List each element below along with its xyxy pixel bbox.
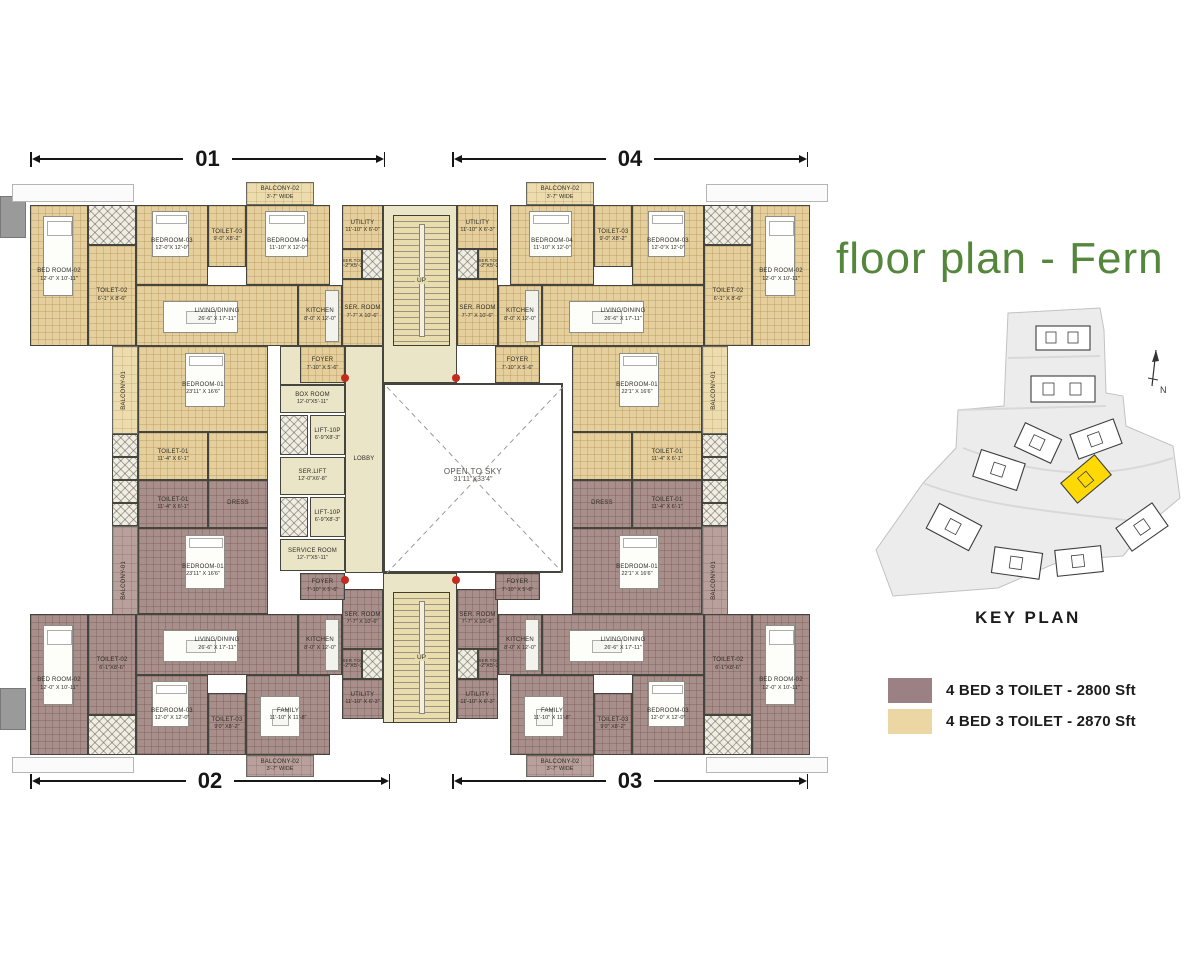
u01-wardrobe — [208, 432, 268, 480]
room-label: KITCHEN8'-0" X 12'-0" — [504, 637, 536, 651]
room-label: UTILITY11'-10" X 6'-3" — [345, 692, 379, 706]
u03-kitchen: KITCHEN8'-0" X 12'-0" — [498, 614, 542, 675]
dim-line — [232, 158, 376, 160]
u03-dress: DRESS — [572, 480, 632, 528]
u04-toilet-01: TOILET-0111'-4" X 6'-1" — [632, 432, 702, 480]
u03-toilet-01: TOILET-0111'-4" X 6'-1" — [632, 480, 702, 528]
wall-stub-left-bottom — [0, 688, 26, 730]
room-label: BEDROOM-0123'11" X 16'6" — [182, 564, 224, 578]
key-plan: N KEY PLAN — [868, 298, 1188, 633]
stairs-up-label: UP — [415, 654, 428, 661]
lift-2: LIFT-10P6'-9"X8'-3" — [310, 497, 345, 537]
room-label: SER. ROOM7'-7" X 10'-6" — [459, 305, 495, 319]
dim-line — [462, 780, 606, 782]
north-label: N — [1160, 385, 1167, 395]
dim-arrow — [799, 777, 807, 785]
room-label: FOYER7'-10" X 5'-6" — [307, 357, 339, 371]
room-label: UTILITY11'-10" X 6'-0" — [345, 220, 379, 234]
legend-row: 4 BED 3 TOILET - 2870 Sft — [888, 709, 1136, 734]
dimension-unit-01: 01 — [30, 150, 385, 168]
room-label: BALCONY-01 — [121, 561, 129, 600]
dim-line — [654, 158, 798, 160]
room-label: BALCONY-01 — [711, 371, 719, 410]
bedw-furniture — [619, 535, 659, 589]
dim-line — [40, 780, 186, 782]
u03-shaft-a — [702, 480, 728, 503]
u01-ser-room: SER. ROOM7'-7" X 10'-6" — [342, 279, 383, 346]
staircase-top: UP — [393, 215, 450, 346]
u01-toilet-01: TOILET-0111'-4" X 6'-1" — [138, 432, 208, 480]
terrace-top-right — [706, 184, 828, 202]
room-label: BALCONY-01 — [711, 561, 719, 600]
bedw-furniture — [619, 353, 659, 407]
key-plan-building — [1036, 326, 1090, 350]
u03-duct-2 — [457, 649, 478, 679]
u04-duct-2 — [457, 249, 478, 279]
floor-plan-page: BED ROOM-0212'-0" X 10'-11"TOILET-026'-1… — [0, 0, 1200, 960]
u04-wardrobe — [572, 432, 632, 480]
service-room: SERVICE ROOM12'-7"X5'-11" — [280, 539, 345, 571]
u01-living-dining: LIVING/DINING26'-6" X 17'-11" — [136, 285, 298, 346]
room-label: TOILET-0111'-4" X 6'-1" — [651, 497, 682, 511]
room-label: BEDROOM-0411'-10" X 12'-0" — [267, 238, 309, 252]
room-label: KITCHEN8'-0" X 12'-0" — [304, 308, 336, 322]
bed-furniture — [43, 625, 73, 705]
room-label: LIVING/DINING26'-6" X 17'-11" — [601, 637, 646, 651]
dim-arrow — [454, 155, 462, 163]
room-label: BALCONY-023'-7" WIDE — [541, 759, 580, 773]
legend: 4 BED 3 TOILET - 2800 Sft 4 BED 3 TOILET… — [888, 678, 1136, 740]
legend-label: 4 BED 3 TOILET - 2800 Sft — [946, 682, 1136, 699]
u04-utility: UTILITY11'-10" X 6'-3" — [457, 205, 498, 249]
room-label: BEDROOM-0312'-0" X 12'-0" — [151, 708, 193, 722]
unit-04-label: 04 — [606, 148, 654, 170]
bed-furniture — [43, 216, 73, 296]
u02-toilet-02: TOILET-026'-1"X8'-6" — [88, 614, 136, 715]
room-label: BEDROOM-0123'11" X 16'6" — [182, 382, 224, 396]
dimension-unit-02: 02 — [30, 772, 390, 790]
u04-bed-room-02: BED ROOM-0212'-0" X 10'-11" — [752, 205, 810, 346]
legend-swatch-2870 — [888, 709, 932, 734]
u04-ser-room: SER. ROOM7'-7" X 10'-6" — [457, 279, 498, 346]
dim-tick — [384, 152, 386, 167]
key-plan-building — [1031, 376, 1095, 402]
key-plan-building — [1055, 546, 1103, 577]
u02-living-dining: LIVING/DINING26'-6" X 17'-11" — [136, 614, 298, 675]
bedw-furniture — [185, 535, 225, 589]
dim-tick — [807, 774, 809, 789]
u02-family: FAMILY11'-10" X 11'-8" — [246, 675, 330, 755]
door-mark — [341, 576, 349, 584]
u02-shaft-b — [112, 503, 138, 526]
dim-line — [654, 780, 798, 782]
room-label: TOILET-0111'-4" X 6'-1" — [157, 497, 188, 511]
room-label: BALCONY-01 — [121, 371, 129, 410]
u01-kitchen: KITCHEN8'-0" X 12'-0" — [298, 285, 342, 346]
door-mark — [341, 374, 349, 382]
door-mark — [452, 374, 460, 382]
legend-label: 4 BED 3 TOILET - 2870 Sft — [946, 713, 1136, 730]
u01-shaft-b — [112, 457, 138, 480]
stairs-up-label: UP — [415, 277, 428, 284]
room-label: SERVICE ROOM12'-7"X5'-11" — [288, 548, 337, 562]
dim-arrow — [32, 155, 40, 163]
room-label: KITCHEN8'-0" X 12'-0" — [304, 637, 336, 651]
room-label: DRESS — [591, 500, 613, 508]
room-label: LIVING/DINING26'-6" X 17'-11" — [195, 308, 240, 322]
room-label: TOILET-0111'-4" X 6'-1" — [157, 449, 188, 463]
u02-bedroom-01: BEDROOM-0123'11" X 16'6" — [138, 528, 268, 614]
legend-swatch-2800 — [888, 678, 932, 703]
u01-utility: UTILITY11'-10" X 6'-0" — [342, 205, 383, 249]
room-label: BEDROOM-0312'-0"X 12'-0" — [151, 238, 193, 252]
room-label: TOILET-026'-1"X8'-6" — [712, 657, 743, 671]
room-label: TOILET-026'-1"X8'-6" — [96, 657, 127, 671]
u02-utility: UTILITY11'-10" X 6'-3" — [342, 679, 383, 719]
room-label: BALCONY-023'-7" WIDE — [261, 759, 300, 773]
room-label: BEDROOM-0312'-0" X 12'-0" — [647, 708, 689, 722]
u01-duct-2 — [362, 249, 383, 279]
dim-arrow — [381, 777, 389, 785]
shaft-1 — [280, 415, 308, 455]
unit-02-label: 02 — [186, 770, 234, 792]
u02-foyer: FOYER7'-10" X 5'-6" — [300, 573, 345, 600]
room-label: KITCHEN8'-0" X 12'-0" — [504, 308, 536, 322]
u01-toilet-03: TOILET-039'-0" X8'-2" — [208, 205, 246, 267]
bedw-furniture — [185, 353, 225, 407]
dim-line — [234, 780, 380, 782]
room-label: UTILITY11'-10" X 6'-3" — [460, 220, 494, 234]
room-label: SER.TOI2'-2"X5'-2" — [478, 658, 498, 671]
room-label: SER. ROOM7'-7" X 10'-6" — [459, 612, 495, 626]
u01-foyer: FOYER7'-10" X 5'-6" — [300, 346, 345, 383]
room-label: BOX ROOM12'-0"X5'-11" — [295, 392, 330, 406]
staircase-bottom: UP — [393, 592, 450, 723]
room-label: BALCONY-023'-7" WIDE — [541, 186, 580, 200]
room-label: BED ROOM-0212'-0" X 10'-11" — [759, 677, 803, 691]
room-label: BED ROOM-0212'-0" X 10'-11" — [759, 268, 803, 282]
u04-toilet-03: TOILET-039'-0" X8'-2" — [594, 205, 632, 267]
u03-toilet-02: TOILET-026'-1"X8'-6" — [704, 614, 752, 715]
room-label: TOILET-039'0" X8'-2" — [597, 717, 628, 731]
u04-shaft-a — [702, 434, 728, 457]
dim-arrow — [454, 777, 462, 785]
terrace-bottom-left — [12, 757, 134, 773]
dim-line — [40, 158, 184, 160]
room-label: FOYER7'-10" X 5'-6" — [502, 579, 534, 593]
dim-arrow — [799, 155, 807, 163]
u03-duct — [704, 715, 752, 755]
room-label: UTILITY11'-10" X 6'-3" — [460, 692, 494, 706]
u02-duct-2 — [362, 649, 383, 679]
room-label: TOILET-039'0" X8'-2" — [211, 717, 242, 731]
room-label: SER.TOI2'-2"X5'-2" — [342, 258, 362, 271]
lift-1: LIFT-10P6'-9"X8'-3" — [310, 415, 345, 455]
u03-bed-room-02: BED ROOM-0212'-0" X 10'-11" — [752, 614, 810, 755]
terrace-bottom-right — [706, 757, 828, 773]
unit-03-label: 03 — [606, 770, 654, 792]
u03-toilet-03: TOILET-039'0" X8'-2" — [594, 693, 632, 755]
room-label: LIFT-10P6'-9"X8'-3" — [314, 428, 340, 442]
u03-shaft-b — [702, 503, 728, 526]
u02-duct — [88, 715, 136, 755]
room-label: LIVING/DINING26'-6" X 17'-11" — [601, 308, 646, 322]
u01-bedroom-03: BEDROOM-0312'-0"X 12'-0" — [136, 205, 208, 285]
u01-bedroom-01: BEDROOM-0123'11" X 16'6" — [138, 346, 268, 432]
u04-kitchen: KITCHEN8'-0" X 12'-0" — [498, 285, 542, 346]
terrace-top-left — [12, 184, 134, 202]
page-title: floor plan - Fern — [836, 234, 1164, 284]
room-label: TOILET-026'-1" X 8'-6" — [712, 288, 743, 302]
u02-dress: DRESS — [208, 480, 268, 528]
room-label: BEDROOM-0312'-0"X 12'-0" — [647, 238, 689, 252]
door-mark — [452, 576, 460, 584]
room-label: BEDROOM-0122'1" X 16'6" — [616, 382, 658, 396]
room-label: BED ROOM-0212'-0" X 10'-11" — [37, 677, 81, 691]
room-label: LIVING/DINING26'-6" X 17'-11" — [195, 637, 240, 651]
dim-tick — [389, 774, 391, 789]
lobby: LOBBY — [345, 346, 383, 573]
u04-duct — [704, 205, 752, 245]
u01-shaft-a — [112, 434, 138, 457]
u02-toilet-01: TOILET-0111'-4" X 6'-1" — [138, 480, 208, 528]
u04-balcony-01: BALCONY-01 — [702, 346, 728, 434]
dim-arrow — [32, 777, 40, 785]
u02-kitchen: KITCHEN8'-0" X 12'-0" — [298, 614, 342, 675]
room-label: FOYER7'-10" X 5'-6" — [502, 357, 534, 371]
north-arrow: N — [1148, 350, 1167, 395]
room-label: BEDROOM-0411'-10" X 12'-0" — [531, 238, 573, 252]
box-room: BOX ROOM12'-0"X5'-11" — [280, 385, 345, 413]
u03-bedroom-03: BEDROOM-0312'-0" X 12'-0" — [632, 675, 704, 755]
u04-shaft-b — [702, 457, 728, 480]
room-label: TOILET-039'-0" X8'-2" — [211, 229, 242, 243]
u01-bedroom-04: BEDROOM-0411'-10" X 12'-0" — [246, 205, 330, 285]
u01-duct — [88, 205, 136, 245]
u03-foyer: FOYER7'-10" X 5'-6" — [495, 573, 540, 600]
u02-shaft-a — [112, 480, 138, 503]
u04-bedroom-04: BEDROOM-0411'-10" X 12'-0" — [510, 205, 594, 285]
u03-family: FAMILY11'-10" X 11'-8" — [510, 675, 594, 755]
u03-utility: UTILITY11'-10" X 6'-3" — [457, 679, 498, 719]
dimension-unit-04: 04 — [452, 150, 808, 168]
wall-stub-left-top — [0, 196, 26, 238]
room-label: SER.TOI2'-2"X5'-2" — [478, 258, 498, 271]
room-label: FAMILY11'-10" X 11'-8" — [534, 708, 571, 722]
u01-balcony-02: BALCONY-023'-7" WIDE — [246, 182, 314, 205]
shaft-2 — [280, 497, 308, 537]
u02-ser-toi: SER.TOI2'-2"X5'-2" — [342, 649, 362, 679]
u04-bedroom-01: BEDROOM-0122'1" X 16'6" — [572, 346, 702, 432]
u01-toilet-02: TOILET-026'-1" X 8'-6" — [88, 245, 136, 346]
room-label: LOBBY — [353, 456, 374, 464]
room-label: FOYER7'-10" X 5'-6" — [307, 579, 339, 593]
room-label: LIFT-10P6'-9"X8'-3" — [314, 510, 340, 524]
open-to-sky-courtyard: OPEN TO SKY 31'11"X33'4" — [383, 383, 563, 573]
u03-living-dining: LIVING/DINING26'-6" X 17'-11" — [542, 614, 704, 675]
room-label: TOILET-0111'-4" X 6'-1" — [651, 449, 682, 463]
room-label: FAMILY11'-10" X 11'-8" — [270, 708, 307, 722]
bed-furniture — [765, 625, 795, 705]
room-label: BALCONY-023'-7" WIDE — [261, 186, 300, 200]
room-label: TOILET-026'-1" X 8'-6" — [96, 288, 127, 302]
courtyard-label: OPEN TO SKY 31'11"X33'4" — [385, 467, 561, 483]
u01-ser-toi: SER.TOI2'-2"X5'-2" — [342, 249, 362, 279]
u02-bedroom-03: BEDROOM-0312'-0" X 12'-0" — [136, 675, 208, 755]
key-plan-label: KEY PLAN — [975, 608, 1081, 627]
room-label: TOILET-039'-0" X8'-2" — [597, 229, 628, 243]
room-label: SER.LIFT12'-0"X6'-8" — [298, 469, 327, 483]
room-label: SER. ROOM7'-7" X 10'-6" — [344, 305, 380, 319]
u04-foyer: FOYER7'-10" X 5'-6" — [495, 346, 540, 383]
room-label: BEDROOM-0122'1" X 16'6" — [616, 564, 658, 578]
room-label: SER.TOI2'-2"X5'-2" — [342, 658, 362, 671]
u04-bedroom-03: BEDROOM-0312'-0"X 12'-0" — [632, 205, 704, 285]
u03-ser-room: SER. ROOM7'-7" X 10'-6" — [457, 589, 498, 649]
room-label: SER. ROOM7'-7" X 10'-6" — [344, 612, 380, 626]
dim-tick — [807, 152, 809, 167]
u02-ser-room: SER. ROOM7'-7" X 10'-6" — [342, 589, 383, 649]
u04-living-dining: LIVING/DINING26'-6" X 17'-11" — [542, 285, 704, 346]
dim-arrow — [376, 155, 384, 163]
u03-bedroom-01: BEDROOM-0122'1" X 16'6" — [572, 528, 702, 614]
legend-row: 4 BED 3 TOILET - 2800 Sft — [888, 678, 1136, 703]
u04-toilet-02: TOILET-026'-1" X 8'-6" — [704, 245, 752, 346]
bed-furniture — [765, 216, 795, 296]
room-label: BED ROOM-0212'-0" X 10'-11" — [37, 268, 81, 282]
u01-bed-room-02: BED ROOM-0212'-0" X 10'-11" — [30, 205, 88, 346]
u02-toilet-03: TOILET-039'0" X8'-2" — [208, 693, 246, 755]
u04-balcony-02: BALCONY-023'-7" WIDE — [526, 182, 594, 205]
u04-ser-toi: SER.TOI2'-2"X5'-2" — [478, 249, 498, 279]
dim-line — [462, 158, 606, 160]
u01-balcony-01: BALCONY-01 — [112, 346, 138, 434]
u03-ser-toi: SER.TOI2'-2"X5'-2" — [478, 649, 498, 679]
dimension-unit-03: 03 — [452, 772, 808, 790]
unit-01-label: 01 — [183, 148, 231, 170]
ser-lift: SER.LIFT12'-0"X6'-8" — [280, 457, 345, 495]
u02-bed-room-02: BED ROOM-0212'-0" X 10'-11" — [30, 614, 88, 755]
room-label: DRESS — [227, 500, 249, 508]
